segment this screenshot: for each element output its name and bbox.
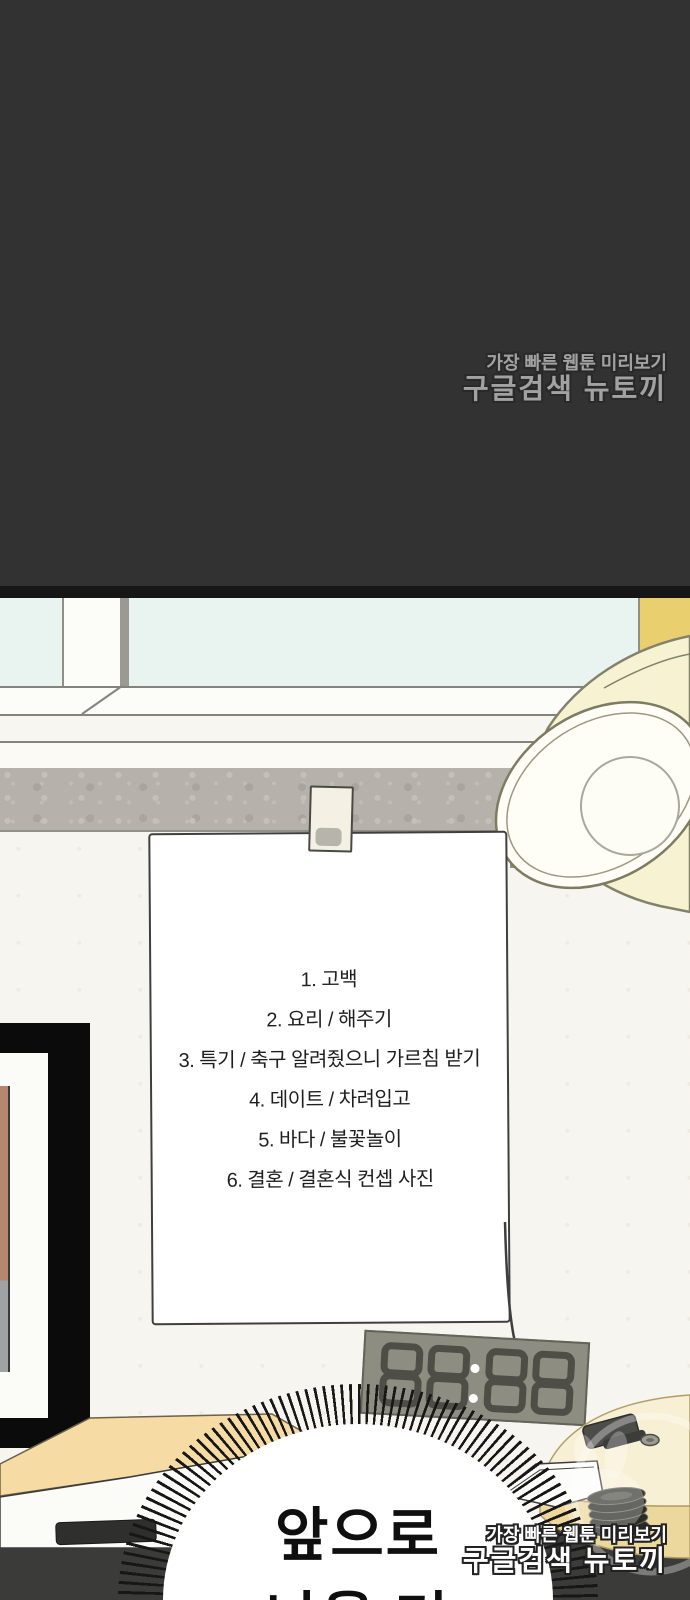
tape-strip [308, 785, 354, 852]
window-frame-mullion [62, 598, 122, 686]
note-line-3: 3. 특기 / 축구 알려줬으니 가르침 받기 [152, 1039, 507, 1081]
note-line-4: 4. 데이트 / 차려입고 [152, 1079, 507, 1121]
watermark-bottom-line2: 구글검색 뉴토끼 [463, 1546, 667, 1577]
tape-shadow-blob [315, 828, 341, 847]
note-line-6: 6. 결혼 / 결혼식 컨셉 사진 [153, 1159, 508, 1201]
note-line-5: 5. 바다 / 불꽃놀이 [152, 1119, 507, 1161]
watermark-top-line2: 구글검색 뉴토끼 [463, 374, 667, 405]
note-line-1: 1. 고백 [151, 959, 506, 1001]
clock-colon-dot-top [470, 1364, 479, 1373]
note-line-2: 2. 요리 / 해주기 [151, 999, 506, 1041]
watermark-top: 가장 빠른 웹툰 미리보기 구글검색 뉴토끼 [463, 354, 667, 405]
watermark-bottom: 가장 빠른 웹툰 미리보기 구글검색 뉴토끼 [463, 1526, 667, 1577]
watermark-top-line1: 가장 빠른 웹툰 미리보기 [463, 354, 667, 374]
coin-ring-hole [646, 1438, 654, 1442]
pinned-note-paper: 1. 고백 2. 요리 / 해주기 3. 특기 / 축구 알려줬으니 가르침 받… [148, 831, 510, 1325]
lamp-cord [490, 1220, 530, 1355]
watermark-bottom-line1: 가장 빠른 웹툰 미리보기 [463, 1526, 667, 1546]
webtoon-page: 1. 고백 2. 요리 / 해주기 3. 특기 / 축구 알려줬으니 가르침 받… [0, 0, 690, 1600]
lamp-bulb [581, 757, 679, 855]
window-frame-shadow [120, 598, 129, 686]
note-list: 1. 고백 2. 요리 / 해주기 3. 특기 / 축구 알려줬으니 가르침 받… [151, 959, 508, 1201]
sill-perspective-line [70, 678, 130, 723]
dark-panel [0, 0, 690, 586]
framed-photo-edge [0, 1086, 10, 1372]
